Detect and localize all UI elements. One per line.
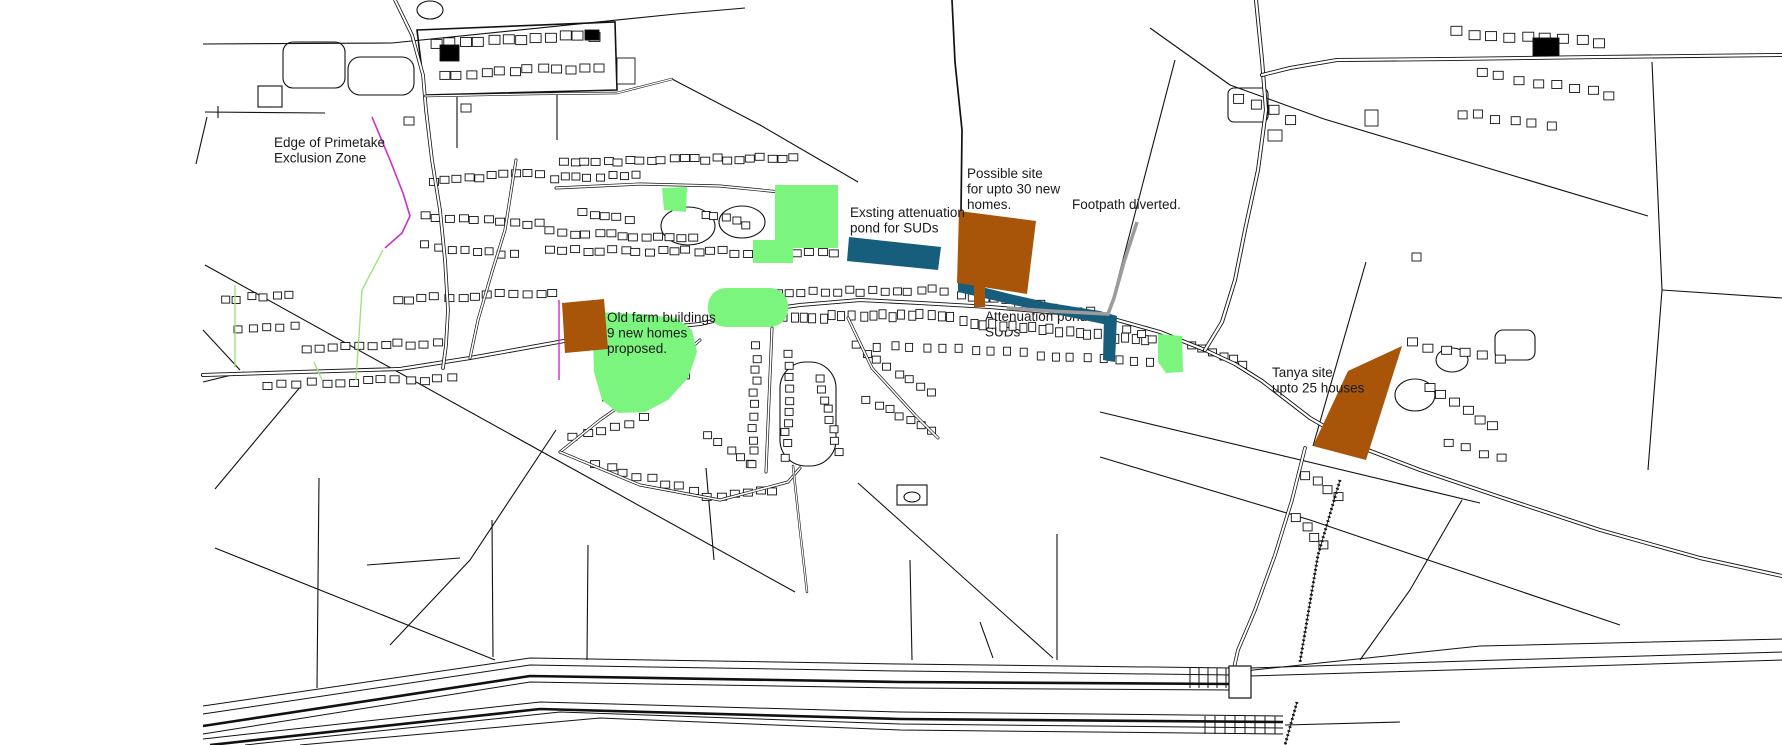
building [825,416,833,423]
building [509,290,518,297]
building [551,176,559,183]
building [704,432,712,439]
building [1130,357,1137,365]
building [728,447,736,454]
building [1514,77,1524,85]
building [862,396,870,403]
building [1408,338,1418,346]
building [635,157,644,164]
building [1442,346,1452,354]
building [461,246,469,253]
field-boundary [1648,290,1662,470]
building [632,171,640,178]
building [804,249,813,256]
building [595,248,604,255]
building [894,288,902,295]
label-tanya-site: Tanya siteupto 25 houses [1272,365,1365,396]
building [1461,444,1470,451]
railway-layer [203,480,1782,745]
building [816,375,824,382]
building [1286,116,1296,125]
building [1589,86,1599,94]
building [870,311,877,320]
building [689,234,698,241]
building [987,347,994,355]
building [537,291,546,298]
building [631,248,640,255]
field-boundary [706,468,714,560]
building [376,376,385,383]
hatched-railway [1300,480,1340,662]
hatched-railway-centre [1285,702,1297,745]
building [819,249,828,256]
street-south-vertical [766,328,772,472]
building [906,343,913,351]
building [292,381,301,388]
lane-south-fields [793,466,807,592]
building [1495,355,1505,363]
buildings-layer [222,26,1614,549]
building [459,295,468,302]
building [263,324,271,331]
building [336,380,345,387]
building [597,428,606,435]
building [572,173,580,180]
building [659,247,668,254]
building [1301,472,1310,480]
building [909,311,916,320]
building [1066,353,1073,361]
building [654,233,663,240]
building [681,246,690,253]
field-boundary [980,622,993,658]
building [222,296,230,303]
building [755,153,764,160]
building [435,244,443,251]
building [285,291,293,298]
building [1009,321,1016,330]
building [1604,92,1614,100]
site-plan-page: Attenuation pondSUDsEdge of PrimetakeExc… [0,0,1782,745]
building [469,217,478,224]
railway-line [1250,652,1782,668]
building [750,437,758,444]
building [889,313,896,322]
building [489,35,500,44]
building [596,230,605,237]
building [706,247,715,254]
building [903,288,911,295]
building [448,374,457,381]
building [778,155,787,162]
building [626,157,635,164]
brown-possible-site-30 [957,211,1036,294]
building [1594,39,1605,48]
building [701,157,710,164]
building [1303,523,1312,531]
building [928,285,936,292]
building [955,344,962,352]
building [368,343,377,350]
building [485,216,494,223]
field-boundary [1150,28,1230,85]
building [605,158,614,165]
building [785,408,793,415]
building [744,251,753,258]
building [892,342,899,350]
building [421,212,430,219]
building [918,287,926,294]
building [612,213,621,220]
teal-attenuation-pond [847,237,941,270]
building [1269,105,1279,114]
field-boundary [1652,62,1662,290]
building [1547,122,1556,130]
building [475,175,484,182]
enclosure [258,86,282,107]
building [276,324,284,331]
building [530,34,541,43]
building [448,247,456,254]
building [1094,329,1101,338]
building [924,344,931,352]
building [548,290,557,297]
building [494,67,504,75]
building [1436,390,1446,398]
building [472,37,483,46]
building [733,217,741,224]
building [916,309,923,318]
building [695,249,704,256]
building [646,249,655,256]
building [1450,398,1460,406]
building [873,343,880,351]
building [628,234,637,241]
label-possible-site-30-homes: Possible sitefor upto 30 newhomes. [967,166,1060,212]
building [1444,439,1453,446]
building [632,474,641,481]
building [522,65,532,73]
building [1504,33,1515,42]
building [432,375,441,382]
green-site-small-west [662,187,687,212]
building [680,155,689,162]
building [861,312,868,321]
field-boundary [1360,500,1462,660]
building [752,342,760,349]
building [897,310,904,319]
building [750,447,758,454]
building [1570,85,1580,93]
building [1084,354,1091,362]
building [648,157,657,164]
building [869,286,877,293]
building [460,215,469,222]
building [561,173,569,180]
building [535,219,544,226]
field-boundary [317,478,319,688]
enclosure [283,42,345,88]
building [578,209,587,216]
field-boundary [1285,722,1400,725]
building [785,290,793,297]
building [768,488,777,495]
building [274,292,282,299]
labels-layer: Edge of PrimetakeExclusion ZoneExsting a… [274,135,1365,396]
building [571,246,580,253]
building [989,319,996,328]
street-southeast-curve-casing [848,318,938,438]
building [1052,353,1059,361]
building [722,214,730,221]
road-south-to-bridge [1234,448,1305,668]
building [485,248,493,255]
building [971,320,978,329]
building [784,350,792,357]
building [499,170,508,177]
building [1122,333,1129,342]
field-green-line [356,250,383,380]
building [1000,322,1007,331]
building [323,380,332,387]
building [610,423,619,430]
building [546,246,555,253]
building [1138,331,1146,338]
building [751,400,759,407]
field-boundary [205,112,325,113]
building [591,212,600,219]
field-boundary [390,430,556,645]
building [622,247,631,254]
building [1123,326,1131,333]
building [748,425,756,432]
building [753,377,761,384]
building [503,35,514,44]
building [792,250,801,257]
building [1552,81,1562,89]
building [927,389,935,396]
building [263,383,272,390]
building [571,231,580,238]
building [809,314,816,323]
building [536,171,545,178]
building [789,154,798,161]
building [917,383,925,390]
building [1487,422,1497,430]
building [580,64,590,72]
building [291,322,299,329]
building [1116,356,1123,364]
building [718,246,727,253]
building [407,377,416,384]
building [665,234,674,241]
green-site-oval [708,288,788,327]
building [341,343,350,350]
building [713,154,722,161]
building [656,157,665,164]
building [617,58,635,84]
building [702,212,710,219]
building [709,213,717,220]
building [467,71,477,79]
building [1029,322,1036,331]
building [876,402,884,409]
building [608,464,617,471]
enclosure [348,57,414,95]
building [938,312,945,321]
building [487,172,496,179]
building [1084,330,1091,339]
building [745,155,754,162]
building [907,417,915,424]
field-boundary [676,8,745,14]
building [1469,31,1480,40]
brown-possible-site-stem [974,283,985,307]
building [539,64,549,72]
building [748,461,756,468]
label-footpath-diverted: Footpath diverted. [1072,197,1181,212]
building [364,377,373,384]
village-site-plan-map: Attenuation pondSUDsEdge of PrimetakeExc… [0,0,1782,745]
building [830,437,838,444]
building [1077,329,1084,338]
building [828,311,835,320]
building [248,293,256,300]
building [1527,119,1536,127]
building [661,481,670,488]
building [1577,35,1588,44]
building [572,31,583,40]
building [613,159,622,166]
building [1323,486,1332,494]
building [800,313,807,322]
building [939,344,946,352]
building [1004,347,1011,355]
building [474,249,482,256]
building [302,346,311,353]
building [973,347,980,355]
brown-tanya-site [1313,346,1402,460]
building [451,71,461,79]
building [1020,348,1027,356]
building [566,66,576,74]
building [591,158,600,165]
field-boundary [587,545,588,660]
building [809,287,817,294]
building [883,363,891,370]
building [511,219,520,226]
building [420,378,429,385]
building [896,371,904,378]
teal-band-leg [1103,316,1117,362]
building [905,376,913,383]
building [516,36,527,45]
building [621,173,629,180]
building [751,366,759,373]
building [583,174,591,181]
building [835,449,843,456]
field-boundary [215,548,495,660]
building [585,30,599,40]
building [461,38,472,47]
building [784,440,792,447]
building [940,288,948,295]
building [1473,110,1482,118]
building [730,250,739,257]
building [609,172,617,179]
building [821,314,828,323]
building [979,321,986,330]
building [785,362,793,369]
building [642,234,651,241]
building [856,289,864,296]
building [749,389,757,396]
building [1251,100,1261,109]
building [429,293,438,300]
enclosure [904,492,920,502]
field-boundary [367,558,460,565]
building [1458,111,1467,119]
building [1463,406,1473,414]
building [792,313,799,322]
building [545,33,556,42]
building [421,241,429,248]
building [445,215,454,222]
building [886,405,894,412]
building [786,398,794,405]
building [523,221,532,228]
building [419,341,428,348]
building [249,325,257,332]
building [640,413,649,420]
building [785,373,793,380]
building [1491,116,1500,124]
building [1365,110,1378,126]
building [608,246,617,253]
field-boundary [215,386,301,489]
building [928,311,935,320]
building [1511,117,1520,125]
building [1291,514,1300,522]
building [1479,451,1488,458]
building [440,176,449,183]
building [785,420,793,427]
field-boundary [196,117,207,164]
building [523,170,532,177]
building [768,155,777,162]
building [580,158,589,165]
building [824,405,832,412]
building [496,218,505,225]
building [838,312,845,321]
building [753,356,761,363]
building [1046,324,1053,333]
building [315,345,324,352]
building [600,213,609,220]
building [781,428,789,435]
building [1477,351,1487,359]
building [559,158,568,165]
building [328,344,337,351]
field-boundary [1100,457,1620,625]
building [829,250,838,257]
building [584,249,593,256]
street-village-north-south [470,160,516,358]
building [394,297,403,304]
building [881,288,889,295]
building [830,426,838,433]
building [670,155,679,162]
